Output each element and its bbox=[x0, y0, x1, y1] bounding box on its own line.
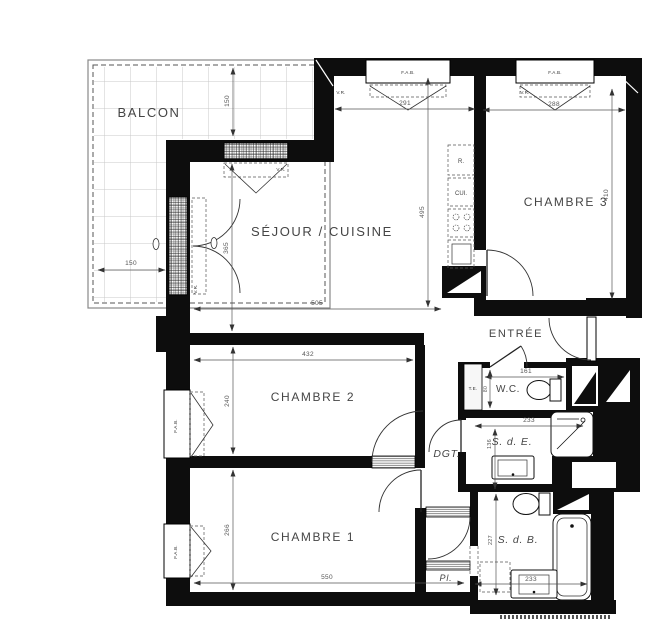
fridge-label: R. bbox=[458, 159, 464, 165]
door-leaf-wc bbox=[490, 346, 521, 367]
closet-front-placard bbox=[426, 561, 470, 570]
dim-chambre1-largeur: 550 bbox=[321, 574, 333, 581]
dim-baie-sejour: 291 bbox=[399, 100, 411, 107]
dim-chambre2-largeur: 432 bbox=[302, 351, 314, 358]
hob-burner bbox=[464, 225, 470, 231]
shutter-label: V.R. bbox=[520, 90, 529, 95]
appliance-space-dashed bbox=[480, 562, 510, 592]
shower-drain bbox=[581, 418, 585, 422]
door-arc-chambre3 bbox=[487, 250, 533, 296]
dim-chambre2-longueur: 240 bbox=[224, 395, 231, 407]
dim-sde-largeur: 233 bbox=[523, 417, 535, 424]
cooker-label: CUI. bbox=[455, 191, 467, 197]
label-placard: Pl. bbox=[440, 573, 453, 583]
door-arc-chambre1 bbox=[379, 470, 421, 512]
casement-swing bbox=[191, 527, 211, 577]
floor-plan-page: F.A.B. V.R. F.A.B. V.R. V.R. V.R. F.A.B.… bbox=[0, 0, 658, 624]
window-swing-zone bbox=[370, 85, 446, 97]
dim-balcon-profondeur: 150 bbox=[224, 95, 231, 107]
label-chambre3: CHAMBRE 3 bbox=[524, 195, 608, 209]
entry-door-leaf bbox=[587, 317, 596, 361]
dim-sejour-longueur: 365 bbox=[223, 242, 230, 254]
electrical-panel-label: T.E. bbox=[469, 386, 478, 391]
washbasin-drain bbox=[533, 591, 536, 594]
window-label: F.A.B. bbox=[173, 419, 178, 432]
dim-chambre1-longueur: 266 bbox=[224, 524, 231, 536]
shutter-label: V.R. bbox=[193, 284, 198, 293]
label-dgt: DGT. bbox=[433, 448, 460, 460]
wall-recess bbox=[572, 462, 616, 488]
hob-box bbox=[448, 209, 474, 237]
toilet-icon bbox=[527, 381, 551, 400]
dim-balcon-largeur: 150 bbox=[125, 260, 137, 267]
window-label: F.A.B. bbox=[401, 70, 414, 75]
door-handle-icon bbox=[153, 239, 159, 250]
door-arc-corridor bbox=[428, 517, 470, 559]
balcony-window-side bbox=[169, 197, 187, 295]
washbasin-drain bbox=[512, 473, 515, 476]
balcony-window-top bbox=[224, 143, 288, 159]
window-swing-zone bbox=[190, 526, 204, 576]
balcony-tiles-left bbox=[94, 139, 166, 302]
kitchen-appliances: R. CUI. bbox=[448, 145, 474, 268]
label-entree: ENTRÉE bbox=[489, 327, 543, 340]
label-sejour-cuisine: SÉJOUR / CUISINE bbox=[251, 224, 393, 239]
sink-basin bbox=[452, 244, 471, 264]
toilet-icon-sdb bbox=[513, 494, 539, 515]
label-wc: W.C. bbox=[496, 384, 520, 395]
casement-swing bbox=[191, 393, 213, 457]
dim-chambre3-largeur: 288 bbox=[548, 101, 560, 108]
label-chambre2: CHAMBRE 2 bbox=[271, 390, 355, 404]
balcony bbox=[88, 60, 330, 308]
sliding-door-chambre2 bbox=[372, 456, 415, 468]
dim-sdb-largeur: 233 bbox=[525, 576, 537, 583]
balcony-tiles-top bbox=[94, 67, 324, 139]
shutter-label: V.R. bbox=[276, 167, 285, 172]
label-balcon: BALCON bbox=[117, 105, 180, 120]
hob-burner bbox=[453, 214, 459, 220]
bathtub-drain bbox=[570, 524, 574, 528]
toilet-tank-icon bbox=[550, 379, 561, 401]
window-label: F.A.B. bbox=[548, 70, 561, 75]
label-sde: S. d. E. bbox=[492, 436, 533, 448]
dim-sdb-longueur: 227 bbox=[488, 535, 494, 545]
window-label: F.A.B. bbox=[173, 545, 178, 558]
sliding-door-corridor bbox=[426, 507, 470, 517]
entry-door-arc bbox=[549, 318, 591, 360]
dim-cuisine-longueur: 495 bbox=[419, 206, 426, 218]
window-swing-zone bbox=[520, 85, 590, 97]
label-chambre1: CHAMBRE 1 bbox=[271, 530, 355, 544]
dim-sejour-largeur: 505 bbox=[311, 300, 323, 307]
toilet-tank-icon bbox=[539, 493, 550, 515]
dim-wc-profondeur: 80 bbox=[483, 386, 489, 392]
label-sdb: S. d. B. bbox=[498, 534, 539, 546]
shutter-label: V.R. bbox=[336, 90, 345, 95]
dim-wc-largeur: 161 bbox=[520, 368, 532, 375]
door-handle-icon bbox=[211, 238, 217, 249]
hob-burner bbox=[464, 214, 470, 220]
hob-burner bbox=[453, 225, 459, 231]
floor-plan-drawing: F.A.B. V.R. F.A.B. V.R. V.R. V.R. F.A.B.… bbox=[0, 0, 658, 624]
